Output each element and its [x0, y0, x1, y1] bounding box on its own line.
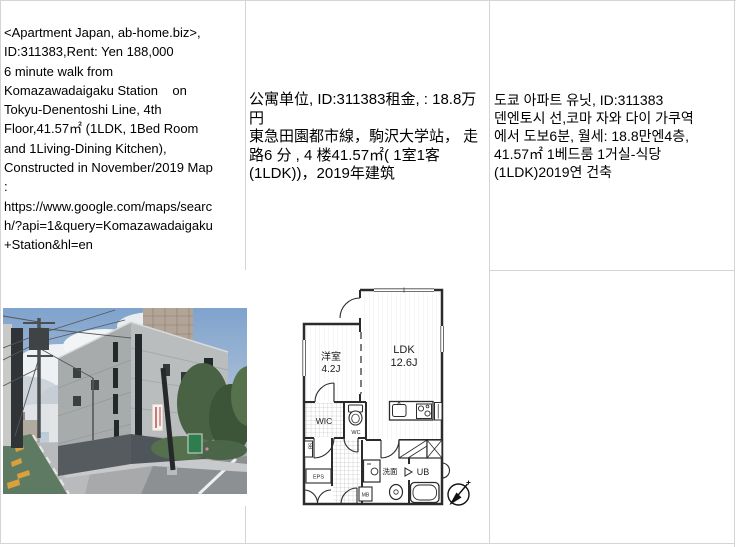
washing-machine: [390, 485, 403, 500]
storage-closets: [399, 440, 442, 458]
wic-label: WIC: [316, 416, 333, 426]
washroom-label: 洗面: [383, 466, 398, 476]
grid-row-divider-col3: [489, 270, 735, 271]
ldk-size-label: 12.6J: [391, 357, 418, 369]
grid-top-border: [0, 0, 736, 1]
listing-description-english: <Apartment Japan, ab-home.biz>, ID:31138…: [4, 23, 244, 255]
sb-label: SB: [307, 443, 313, 450]
grid-col1-divider-lower: [245, 506, 246, 543]
building-photo: [3, 308, 247, 494]
listing-description-chinese: 公寓单位, ID:311383租金, : 18.8万 円 東急田園都市線，駒沢大…: [249, 91, 487, 184]
eps-label: EPS: [313, 475, 324, 481]
grid-col1-divider: [245, 0, 246, 270]
bedroom-floor: [305, 325, 359, 401]
mb-label: MB: [362, 493, 370, 499]
grid-col2-divider: [489, 0, 490, 543]
kitchen-counter: [390, 402, 443, 421]
bedroom-label: 洋室: [321, 350, 341, 363]
listing-description-korean: 도쿄 아파트 유닛, ID:311383 덴엔토시 선,코마 자와 다이 가쿠역…: [494, 91, 732, 181]
ldk-label: LDK: [393, 344, 415, 356]
grid-left-border: [0, 0, 1, 544]
ub-label: UB: [417, 467, 430, 477]
grid-right-border: [734, 0, 735, 547]
washbasin: [364, 460, 381, 482]
bedroom-size-label: 4.2J: [322, 364, 341, 375]
bathtub: [411, 483, 440, 503]
left-building-edge: [3, 324, 23, 448]
floor-plan: LDK 12.6J 洋室 4.2J WIC WC 洗面 UB EPS MB SB: [294, 282, 476, 512]
toilet: [349, 405, 363, 425]
wc-label: WC: [351, 430, 360, 436]
north-compass-icon: [448, 481, 471, 506]
hallway-floor: [333, 440, 360, 503]
listing-sheet: <Apartment Japan, ab-home.biz>, ID:31138…: [0, 0, 736, 547]
grid-bottom-border: [0, 543, 735, 544]
green-signboard: [188, 434, 202, 453]
